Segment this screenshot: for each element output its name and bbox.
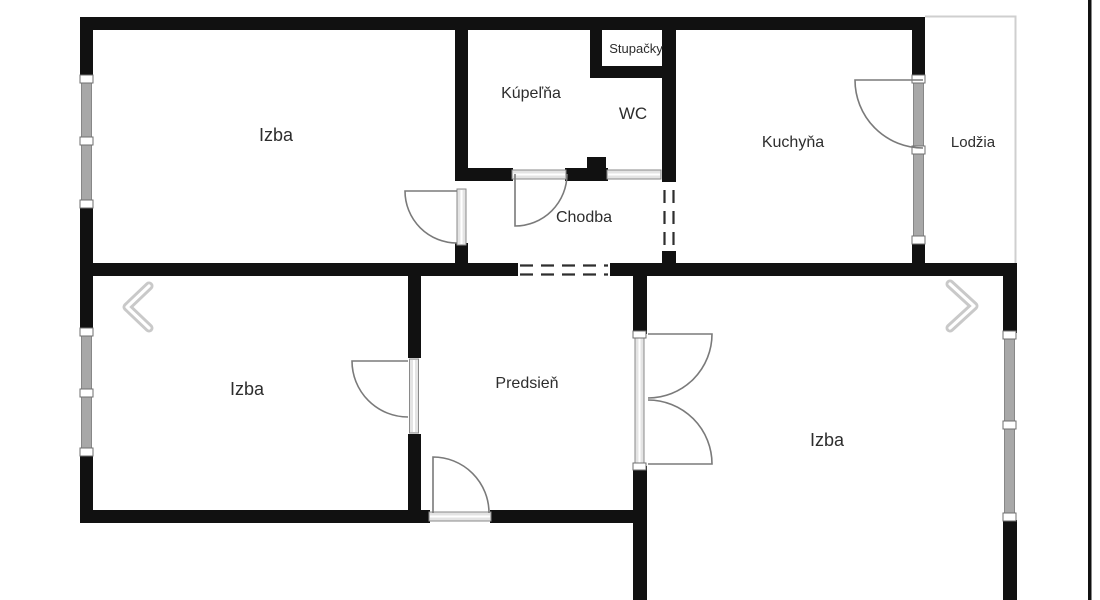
door-arc (648, 400, 712, 464)
door-arc (855, 80, 923, 148)
gallery-viewport: Izba Kúpeľňa Stupačky WC Kuchyňa Lodžia … (0, 0, 1100, 600)
next-image-icon[interactable] (950, 284, 974, 328)
room-labels-layer: Izba Kúpeľňa Stupačky WC Kuchyňa Lodžia … (230, 41, 996, 450)
dashed-openings-layer (520, 190, 674, 275)
door-arc (648, 334, 712, 398)
room-label-lodzia: Lodžia (951, 134, 996, 151)
room-label-izba-bottom-left: Izba (230, 379, 265, 399)
room-label-chodba: Chodba (556, 209, 612, 226)
door-arc (352, 361, 408, 417)
room-label-stupacky: Stupačky (609, 41, 663, 56)
previous-image-icon[interactable] (127, 286, 149, 328)
room-label-wc: WC (619, 104, 647, 123)
door-arc (405, 191, 457, 243)
room-label-izba-top-left: Izba (259, 125, 294, 145)
walls-layer (80, 17, 1017, 600)
room-label-izba-bottom-right: Izba (810, 430, 845, 450)
room-label-kupelna: Kúpeľňa (501, 85, 561, 102)
photo-edge-line (1088, 0, 1092, 600)
windows-layer (80, 75, 1016, 521)
floorplan-image: Izba Kúpeľňa Stupačky WC Kuchyňa Lodžia … (0, 0, 1100, 600)
room-label-predsien: Predsieň (495, 375, 558, 392)
door-arc (433, 457, 489, 513)
room-label-kuchyna: Kuchyňa (762, 134, 824, 151)
